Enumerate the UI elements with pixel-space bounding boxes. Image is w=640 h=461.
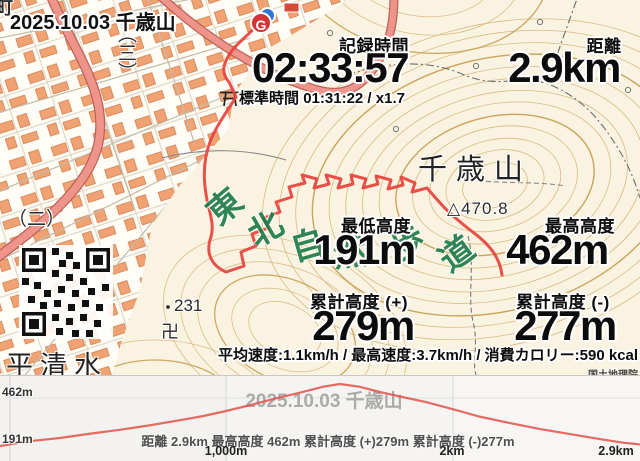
descent-value: 277m	[514, 305, 615, 347]
map-sign	[284, 3, 299, 12]
elevation-chart[interactable]: 2025.10.03 千歳山 462m 191m 距離 2.9km 最高高度 4…	[0, 375, 640, 461]
distance-value: 2.9km	[508, 47, 620, 89]
standard-time-value: 標準時間 01:31:22 / x1.7	[239, 87, 405, 108]
app-screen: G 町 （三） （二） 千歳山 △470.8 231 卍 平清水 東 北 自 然…	[0, 0, 640, 461]
x-tick-1000m: 1,000m	[205, 444, 247, 458]
y-max-label: 462m	[2, 385, 33, 399]
map-attribution: 国土地理院	[588, 366, 638, 375]
x-tick-2km: 2km	[439, 444, 464, 458]
map-label-spot-height: 231	[174, 296, 202, 316]
max-altitude-value: 462m	[506, 229, 607, 271]
map-label-triangulation: △470.8	[447, 199, 509, 219]
spot-height-dot	[166, 305, 170, 309]
temple-icon: 卍	[161, 318, 179, 344]
map-label-district2: （二）	[8, 204, 65, 231]
map-label-place: 平清水	[6, 344, 108, 375]
qr-code	[19, 245, 113, 339]
ascent-value: 279m	[312, 305, 413, 347]
recording-time-value: 02:33:57	[252, 47, 408, 89]
page-title: 2025.10.03 千歳山	[10, 6, 176, 35]
goal-marker[interactable]: G	[250, 12, 272, 34]
speed-summary: 平均速度:1.1km/h / 最高速度:3.7km/h / 消費カロリー:590…	[218, 344, 638, 365]
map-label-mountain: 千歳山	[418, 146, 532, 188]
y-min-label: 191m	[2, 432, 33, 446]
min-altitude-value: 191m	[313, 229, 414, 271]
x-tick-2-9km: 2.9km	[598, 444, 633, 458]
